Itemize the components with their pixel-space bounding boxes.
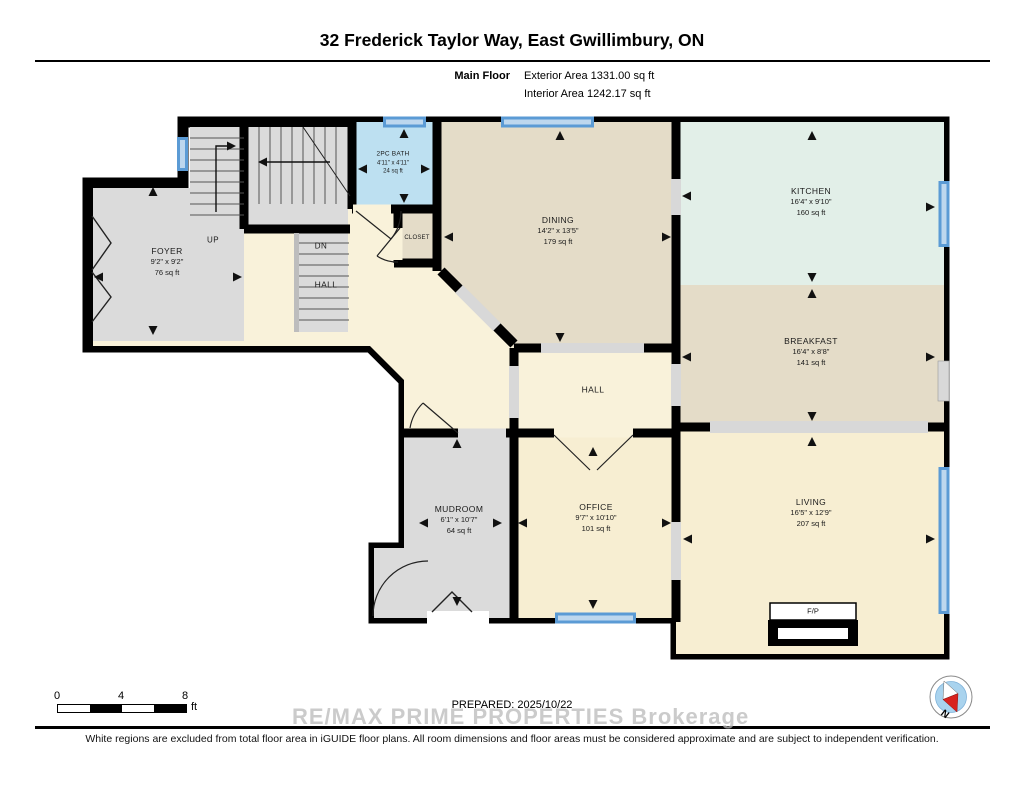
label-mudroom: MUDROOM 6'1" x 10'7" 64 sq ft <box>435 504 484 536</box>
brokerage-watermark: RE/MAX PRIME PROPERTIES Brokerage <box>292 704 749 730</box>
label-hall-center: HALL <box>582 384 605 395</box>
floor-plan-canvas <box>0 0 1024 791</box>
window-bath-top <box>383 117 426 128</box>
label-breakfast: BREAKFAST 16'4" x 8'8" 141 sq ft <box>784 336 838 368</box>
label-bath: 2PC BATH 4'11" x 4'11" 24 sq ft <box>377 151 410 176</box>
label-dining: DINING 14'2" x 13'5" 179 sq ft <box>537 215 578 247</box>
label-closet: CLOSET <box>404 234 429 242</box>
window-stairs-left <box>177 137 188 171</box>
window-office-bottom <box>555 613 636 624</box>
label-stairs-down: DN <box>315 242 328 251</box>
label-stairs-up: UP <box>207 236 219 245</box>
window-living-right <box>939 467 950 614</box>
floor-plan-page: 32 Frederick Taylor Way, East Gwillimbur… <box>0 0 1024 791</box>
disclaimer-text: White regions are excluded from total fl… <box>0 733 1024 745</box>
window-kitchen-right <box>939 181 950 247</box>
label-fireplace: F/P <box>807 607 819 616</box>
label-living: LIVING 16'5" x 12'9" 207 sq ft <box>790 497 831 529</box>
label-kitchen: KITCHEN 16'4" x 9'10" 160 sq ft <box>790 186 831 218</box>
label-office: OFFICE 9'7" x 10'10" 101 sq ft <box>575 502 616 534</box>
label-hall: HALL <box>315 279 338 290</box>
window-dining-top <box>501 117 594 128</box>
label-foyer: FOYER 9'2" x 9'2" 76 sq ft <box>151 246 184 278</box>
